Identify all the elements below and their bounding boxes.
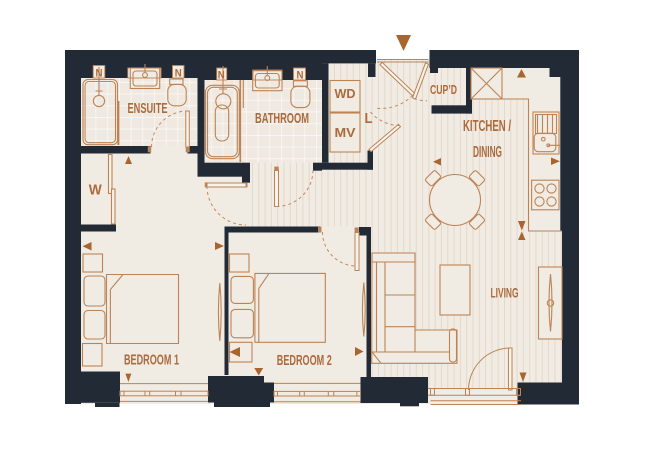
svg-text:WD: WD — [335, 86, 356, 101]
svg-text:BATHROOM: BATHROOM — [255, 110, 309, 127]
svg-text:BEDROOM 1: BEDROOM 1 — [124, 352, 179, 369]
svg-text:LIVING: LIVING — [491, 285, 519, 301]
svg-text:N: N — [297, 70, 304, 82]
svg-text:BEDROOM 2: BEDROOM 2 — [277, 352, 332, 369]
svg-text:N: N — [175, 68, 182, 80]
svg-text:KITCHEN /: KITCHEN / — [463, 118, 511, 135]
svg-text:ENSUITE: ENSUITE — [128, 100, 168, 117]
svg-text:L: L — [365, 110, 373, 127]
svg-text:CUP’D: CUP’D — [430, 82, 457, 97]
svg-text:N: N — [218, 70, 225, 82]
svg-text:W: W — [89, 182, 103, 199]
svg-text:MV: MV — [335, 125, 356, 140]
svg-text:N: N — [96, 68, 103, 80]
svg-text:DINING: DINING — [473, 144, 502, 161]
